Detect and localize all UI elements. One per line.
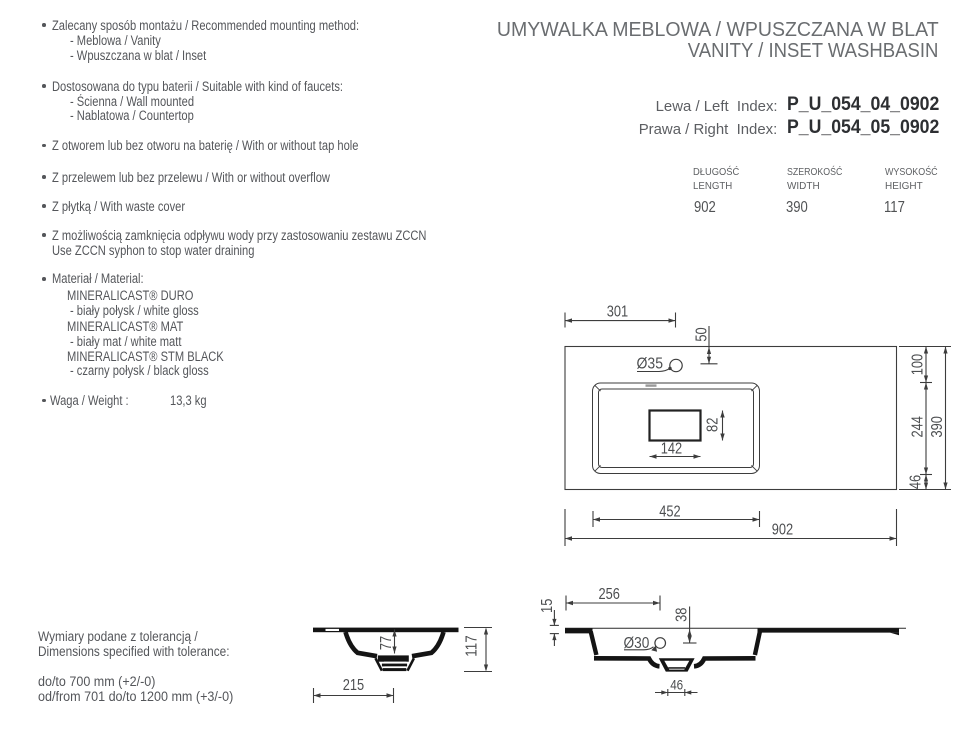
svg-text:244: 244 [910, 416, 927, 438]
svg-text:215: 215 [343, 677, 364, 694]
svg-text:301: 301 [607, 303, 628, 320]
svg-text:117: 117 [464, 635, 481, 656]
svg-text:46: 46 [908, 475, 925, 489]
svg-text:82: 82 [705, 418, 722, 432]
svg-text:390: 390 [929, 416, 946, 438]
svg-text:46: 46 [670, 676, 683, 692]
svg-text:100: 100 [910, 353, 927, 375]
svg-text:77: 77 [378, 636, 395, 650]
svg-text:142: 142 [661, 441, 682, 458]
svg-text:38: 38 [674, 608, 691, 622]
svg-text:Ø35: Ø35 [637, 355, 664, 372]
svg-text:50: 50 [694, 327, 711, 342]
svg-text:902: 902 [772, 522, 793, 539]
svg-text:256: 256 [599, 586, 620, 603]
svg-text:452: 452 [659, 504, 680, 521]
svg-text:15: 15 [539, 599, 556, 613]
